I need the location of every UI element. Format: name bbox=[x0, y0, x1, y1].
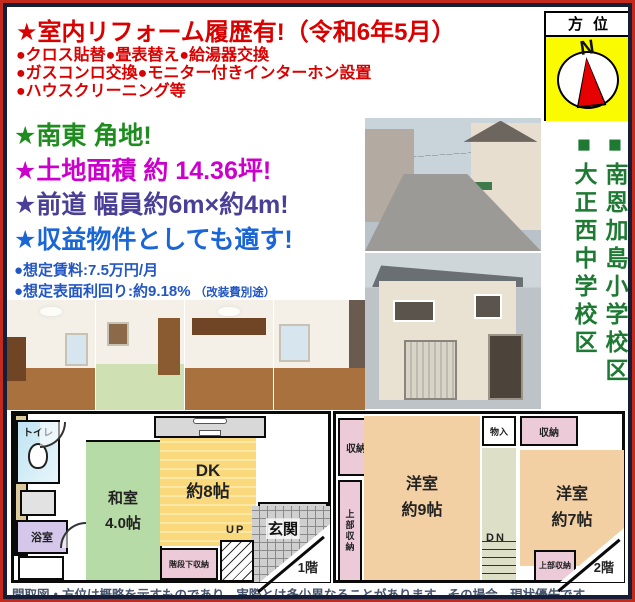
under-stair-storage-label: 階段下収納 bbox=[169, 559, 209, 570]
interior-window bbox=[65, 333, 88, 366]
interior-photo-tatami bbox=[96, 300, 184, 410]
upper-storage-left-label: 上部収納 bbox=[344, 509, 357, 553]
building-window bbox=[393, 300, 435, 322]
kitchen-counter bbox=[154, 416, 266, 438]
interior-photo-dk bbox=[7, 300, 95, 410]
western-room-9: 洋室 約9帖 bbox=[364, 416, 480, 580]
page-title: ★室内リフォーム履歴有!（令和6年5月） bbox=[16, 12, 536, 47]
interior-photo-room2 bbox=[274, 300, 365, 410]
dk-size: 約8帖 bbox=[186, 481, 229, 502]
western-room-9-label: 洋室 bbox=[406, 472, 438, 498]
japanese-room-size: 4.0帖 bbox=[105, 511, 141, 537]
western-room-7-size: 約7帖 bbox=[552, 508, 593, 534]
curtain bbox=[349, 300, 365, 368]
entrance-label: 玄関 bbox=[266, 518, 300, 539]
ceiling-light bbox=[218, 307, 239, 317]
renovation-item: ●ガスコンロ交換●モニター付きインターホン設置 bbox=[16, 65, 536, 83]
property-flyer: ★室内リフォーム履歴有!（令和6年5月） ●クロス貼替●畳表替え●給湯器交換 ●… bbox=[0, 0, 635, 602]
western-room-7-label: 洋室 bbox=[556, 482, 588, 508]
door-swing bbox=[40, 422, 66, 448]
building-window bbox=[474, 294, 502, 319]
floorplan-1f: トイレ 浴室 和室 4.0帖 DK 約8帖 玄関 階段下収納 UP 1階 bbox=[11, 411, 331, 583]
upper-storage-left: 上部収納 bbox=[338, 480, 362, 582]
interior-window bbox=[279, 324, 310, 361]
elementary-school-district: ■南恩加島小学校区 bbox=[599, 131, 630, 439]
junior-high-district: ■大正西中学校区 bbox=[568, 131, 599, 439]
compass-title: 方位 bbox=[546, 13, 630, 37]
upper-closet bbox=[192, 318, 266, 336]
stairs-down bbox=[482, 448, 516, 580]
floor1-label: 1階 bbox=[298, 557, 318, 576]
bathtub bbox=[18, 556, 64, 580]
bathroom: 浴室 bbox=[16, 520, 68, 554]
stove-icon bbox=[199, 430, 221, 436]
highlight-investment: ★収益物件としても適す! bbox=[14, 223, 366, 258]
highlights-section: ★南東 角地! ★土地面積 約 14.36坪! ★前道 幅員約6m×約4m! ★… bbox=[14, 119, 366, 257]
yield-value: ●想定表面利回り:約9.18% bbox=[14, 283, 191, 300]
dk-label: DK bbox=[196, 460, 221, 481]
disclaimer-text: 間取図・方位は概略を示すものであり、実際とは多少異なることがあります。その場合、… bbox=[12, 584, 632, 602]
western-room-9-size: 約9帖 bbox=[402, 498, 443, 524]
highlight-land-area: ★土地面積 約 14.36坪! bbox=[14, 154, 366, 189]
storage-label: 収納 bbox=[346, 440, 366, 455]
stairs-up bbox=[220, 540, 254, 582]
income-section: ●想定賃料:7.5万円/月 ●想定表面利回り:約9.18% （改装費別途） bbox=[14, 259, 366, 301]
expected-rent: ●想定賃料:7.5万円/月 bbox=[14, 259, 366, 280]
ceiling-light bbox=[40, 307, 61, 317]
renovation-list: ●クロス貼替●畳表替え●給湯器交換 ●ガスコンロ交換●モニター付きインターホン設… bbox=[16, 47, 536, 101]
upper-storage-right-label: 上部収納 bbox=[539, 561, 571, 571]
renovation-item: ●ハウスクリーニング等 bbox=[16, 83, 536, 101]
entrance-door bbox=[488, 334, 523, 400]
interior-photo-room1 bbox=[185, 300, 273, 410]
garage-shutter bbox=[404, 340, 457, 399]
closet-label: 物入 bbox=[490, 425, 508, 438]
highlight-corner-lot: ★南東 角地! bbox=[14, 119, 366, 154]
storage-label: 収納 bbox=[539, 424, 559, 439]
wood-door bbox=[158, 318, 181, 375]
compass-box: 方位 N bbox=[544, 11, 632, 121]
floorplan-2f: 収納 上部収納 洋室 約9帖 物入 DN 収納 洋室 約7帖 上部収納 2階 bbox=[333, 411, 625, 583]
highlight-road-width: ★前道 幅員約6m×約4m! bbox=[14, 188, 366, 223]
cabinet bbox=[7, 337, 26, 381]
compass-dial: N bbox=[546, 37, 630, 121]
street-view-photo bbox=[365, 118, 541, 251]
closet: 物入 bbox=[482, 416, 516, 446]
expected-yield: ●想定表面利回り:約9.18% （改装費別途） bbox=[14, 280, 366, 301]
yield-note: （改装費別途） bbox=[195, 287, 276, 299]
japanese-room: 和室 4.0帖 bbox=[86, 440, 162, 582]
floor2-label: 2階 bbox=[594, 557, 614, 576]
sink-icon bbox=[193, 418, 227, 424]
bath-label: 浴室 bbox=[31, 529, 53, 545]
washstand bbox=[20, 490, 56, 516]
wall-cabinet bbox=[107, 322, 130, 346]
headline-section: ★室内リフォーム履歴有!（令和6年5月） ●クロス貼替●畳表替え●給湯器交換 ●… bbox=[16, 12, 536, 101]
japanese-room-label: 和室 bbox=[108, 486, 138, 512]
storage-top-right: 収納 bbox=[520, 416, 578, 446]
renovation-item: ●クロス貼替●畳表替え●給湯器交換 bbox=[16, 47, 536, 65]
up-label: UP bbox=[226, 524, 245, 536]
building-exterior-photo bbox=[365, 253, 541, 409]
dn-label: DN bbox=[486, 532, 506, 544]
school-district: ■南恩加島小学校区 ■大正西中学校区 bbox=[560, 131, 630, 439]
under-stair-storage: 階段下収納 bbox=[160, 548, 218, 580]
north-label: N bbox=[578, 36, 596, 61]
